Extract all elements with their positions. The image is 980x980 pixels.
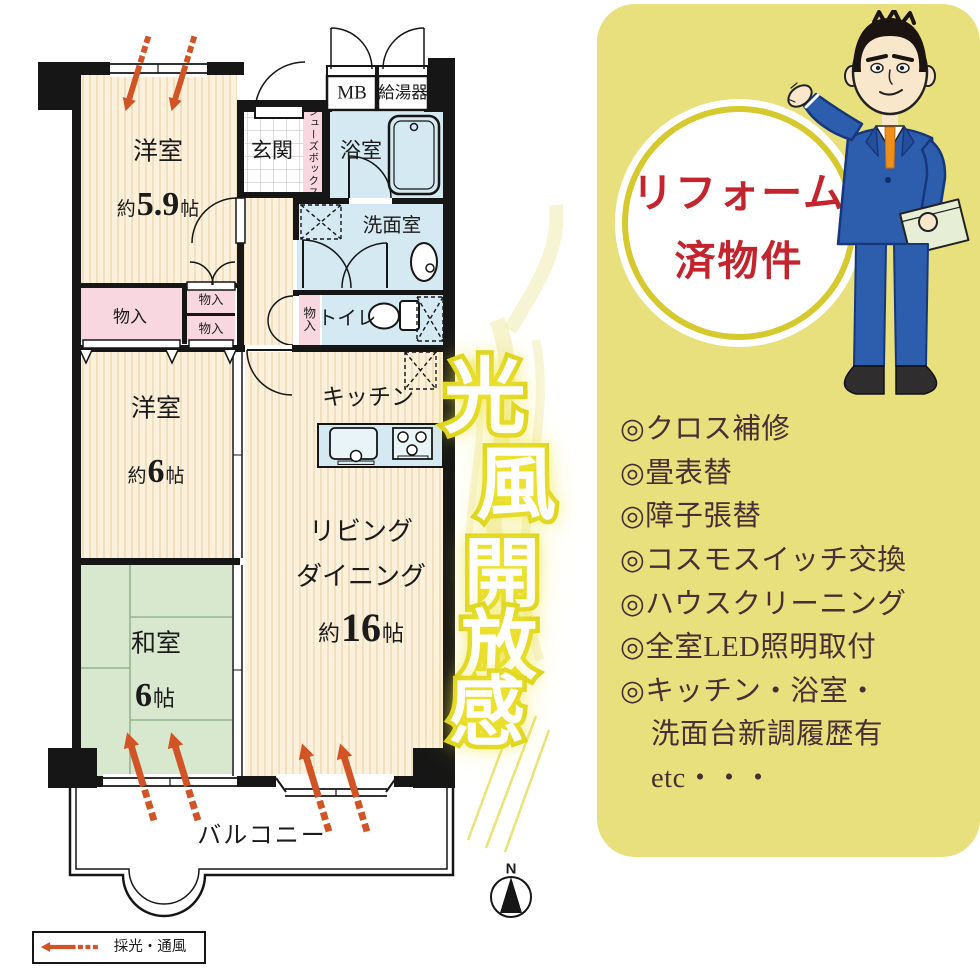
room-label-bedroom6: 洋室 [131,397,181,422]
flyer: { "plan": { "rooms": { "bedroom59": {"na… [0,0,980,980]
balcony-outline [70,787,453,916]
compass-north-label: N [506,862,517,877]
size-about: 約 [127,467,146,486]
salesman-illustration [782,10,978,402]
room-label-closet-small-1: 物入 [198,294,223,307]
room-label-washroom: 洗面室 [363,216,422,236]
reform-item: ◎クロス補修 [620,405,972,449]
room-size-washitsu: 6帖 [135,679,175,713]
room-label-living-1: リビング [309,519,413,545]
room-label-bath: 浴室 [340,141,382,162]
reform-item: ◎畳表替 [620,449,972,493]
size-about: 約 [318,623,340,645]
reform-item: etc・・・ [620,754,972,798]
size-unit: 帖 [180,200,199,219]
room-label-closet-small-2: 物入 [198,323,223,336]
reform-item: ◎障子張替 [620,492,972,536]
room-label-closet: 物入 [113,309,147,326]
catchphrase-char: 感 [449,650,525,760]
kitchen-counter-icon [318,424,443,467]
reform-list: ◎クロス補修 ◎畳表替 ◎障子張替 ◎コスモスイッチ交換 ◎ハウスクリーニング … [620,405,972,797]
room-label-entrance: 玄関 [251,141,293,162]
size-num: 6 [135,679,152,713]
legend-label: 採光・通風 [114,940,187,955]
room-label-washitsu: 和室 [131,632,181,657]
room-label-meter-box: MB [337,84,367,103]
room-label-shoes-box: シューズボックス [307,106,318,198]
size-unit: 帖 [153,688,175,710]
size-num: 16 [341,608,381,648]
reform-item: ◎全室LED照明取付 [620,623,972,667]
reform-item: ◎コスモスイッチ交換 [620,536,972,580]
room-label-toilet: トイレ [318,309,377,329]
room-size-living: 約16帖 [318,608,404,648]
reform-item: 洗面台新調履歴有 [620,710,972,754]
size-unit: 帖 [382,623,404,645]
room-size-bedroom59: 約5.9帖 [117,188,200,222]
size-about: 約 [117,200,136,219]
washbasin-icon [411,243,437,281]
size-num: 6 [148,455,165,489]
size-unit: 帖 [166,467,185,486]
room-label-balcony: バルコニー [197,824,327,848]
room-label-bedroom59: 洋室 [133,140,183,165]
compass-icon [491,877,531,917]
room-label-water-heater: 給湯器 [378,85,428,102]
room-label-closet-hall: 物入 [302,307,315,332]
room-size-bedroom6: 約6帖 [127,455,184,489]
reform-item: ◎ハウスクリーニング [620,579,972,623]
room-label-living-2: ダイニング [296,564,426,590]
room-label-kitchen: キッチン [322,386,414,409]
size-num: 5.9 [137,188,180,222]
reform-item: ◎キッチン・浴室・ [620,667,972,711]
